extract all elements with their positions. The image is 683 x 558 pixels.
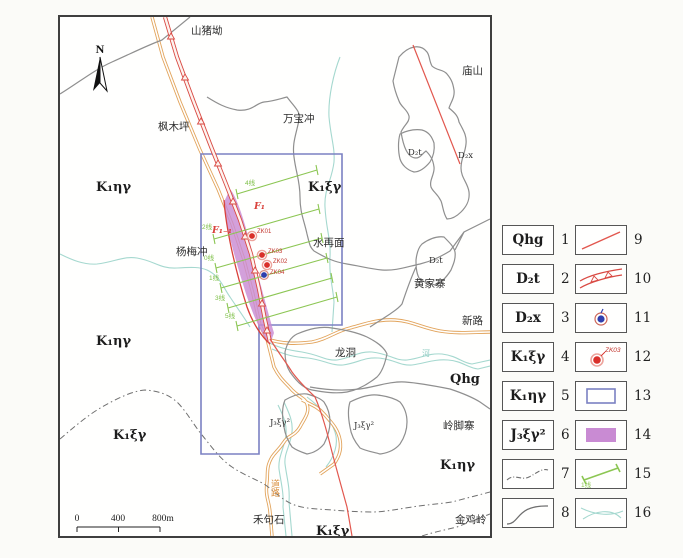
drillhole-label-zk01: ZK01: [257, 229, 272, 235]
legend-swatch-j3xy2: J₃ξγ²: [502, 420, 554, 450]
north-arrow-left: [93, 57, 100, 91]
place-fengmuping: 枫木坪: [158, 120, 190, 133]
fault-zone-icon: [577, 265, 625, 293]
survey-label-3: 3线: [215, 293, 226, 302]
legend-swatch-phase-boundary: [502, 459, 554, 489]
stream-j3: [307, 397, 336, 467]
scale-0: 0: [75, 514, 80, 524]
drillhole-zk02: ZK02: [262, 259, 288, 270]
legend-number-14: 14: [634, 427, 651, 443]
unit-d2t-center: D₂t: [429, 256, 443, 266]
place-huangjiazhai: 黄家寨: [414, 277, 446, 290]
legend-unit-label-k1xy: K₁ξγ: [511, 349, 546, 365]
north-arrow-right: [100, 57, 107, 91]
legend-number-10: 10: [634, 271, 651, 287]
fault-northeast: [413, 45, 460, 164]
legend-swatch-qhg: Qhg: [502, 225, 554, 255]
road-label: 道路: [270, 478, 280, 498]
unit-k1xy-sw: K₁ξγ: [113, 428, 147, 443]
legend-item-2: D₂t 2: [502, 264, 570, 294]
legend-item-13: 13: [575, 381, 651, 411]
unit-k1hy-nw: K₁ηγ: [96, 180, 131, 195]
boundary-qhg-west: [370, 267, 416, 327]
legend-swatch-study-area: [575, 381, 627, 411]
legend-unit-label-k1hy: K₁ηγ: [510, 388, 546, 404]
legend-1xian-label: 1线: [581, 480, 592, 488]
legend-number-8: 8: [561, 505, 570, 521]
exploration-line-icon: 1线: [577, 460, 625, 488]
geological-map-figure: 4线 2线 0线 1线 3线 5线 ZK01 ZK03: [0, 0, 683, 558]
unit-j3xy2-w: J₃ξγ²: [269, 418, 290, 428]
north-arrow: N: [93, 42, 107, 91]
place-wanbaochong: 万宝冲: [283, 112, 315, 125]
legend-number-5: 5: [561, 388, 570, 404]
study-area-icon: [577, 382, 625, 410]
legend-number-15: 15: [634, 466, 651, 482]
place-jinjiling: 金鸡岭: [455, 513, 487, 526]
unit-d2x-ne: D₂x: [458, 151, 473, 161]
survey-label-4: 4线: [245, 178, 256, 187]
legend-item-10: 10: [575, 264, 651, 294]
legend-swatch-fault-line: [575, 225, 627, 255]
river-main: [267, 342, 490, 364]
drillhole-label-zk02: ZK02: [273, 259, 288, 265]
drillhole-zk04-barren: ZK04: [260, 270, 285, 279]
map-frame: 4线 2线 0线 1线 3线 5线 ZK01 ZK03: [58, 15, 492, 538]
phase-boundary-dashdot-icon: [504, 460, 552, 488]
legend-number-1: 1: [561, 232, 570, 248]
legend-item-16: 16: [575, 498, 651, 528]
stream-icon: [577, 499, 625, 527]
legend-swatch-ore-body: [575, 420, 627, 450]
map-svg: 4线 2线 0线 1线 3线 5线 ZK01 ZK03: [60, 17, 490, 536]
streams: [60, 57, 490, 536]
legend-number-16: 16: [634, 505, 651, 521]
drillhole-ore-icon: ZK03: [577, 343, 625, 371]
boundary-huangjiazhai-tail: [455, 232, 464, 250]
legend-swatch-drillhole-barren: [575, 303, 627, 333]
drillhole-barren-icon: [577, 304, 625, 332]
legend-swatch-drillhole-ore: ZK03: [575, 342, 627, 372]
legend-swatch-stream: [575, 498, 627, 528]
legend-swatch-exploration-line: 1线: [575, 459, 627, 489]
legend-item-9: 9: [575, 225, 651, 255]
legend-item-1: Qhg 1: [502, 225, 570, 255]
survey-label-5: 5线: [225, 311, 236, 320]
legend-unit-label-j3xy2: J₃ξγ²: [510, 427, 545, 443]
legend-number-11: 11: [634, 310, 651, 326]
legend-number-7: 7: [561, 466, 570, 482]
place-yangmeichong: 杨梅冲: [176, 245, 208, 258]
legend-swatch-k1xy: K₁ξγ: [502, 342, 554, 372]
place-longdong: 龙洞: [335, 346, 356, 359]
legend-item-8: 8: [502, 498, 570, 528]
legend-number-9: 9: [634, 232, 643, 248]
legend-unit-label-d2t: D₂t: [516, 271, 540, 287]
legend-item-4: K₁ξγ 4: [502, 342, 570, 372]
legend-column-units: Qhg 1 D₂t 2 D₂x 3 K₁ξγ 4 K₁ηγ 5 J₃ξγ² 6: [502, 225, 570, 537]
legend-item-5: K₁ηγ 5: [502, 381, 570, 411]
legend-item-3: D₂x 3: [502, 303, 570, 333]
legend-item-6: J₃ξγ² 6: [502, 420, 570, 450]
legend-swatch-fault-zone: [575, 264, 627, 294]
fault-label-f1-1: F₁₋₁: [211, 225, 232, 236]
place-shanzhuao: 山猪坳: [191, 24, 223, 37]
place-miaoshan: 庙山: [462, 64, 483, 77]
survey-label-1: 1线: [209, 273, 220, 282]
scale-bar: 0 400 800m: [75, 514, 175, 532]
place-hejushi: 禾句石: [253, 513, 285, 526]
fault-line-icon: [577, 226, 625, 254]
unit-d2t-ne: D₂t: [408, 148, 422, 158]
place-shuizaimian: 水再面: [313, 237, 345, 249]
river-label: 河: [422, 348, 430, 358]
scale-400: 400: [111, 514, 126, 524]
legend-number-4: 4: [561, 349, 570, 365]
legend-zk03-label: ZK03: [604, 347, 621, 354]
unit-j3xy2-e: J₃ξγ²: [353, 421, 374, 431]
unit-k1xy-ne: K₁ξγ: [308, 180, 342, 195]
legend-item-11: 11: [575, 303, 651, 333]
legend-swatch-d2x: D₂x: [502, 303, 554, 333]
legend-item-14: 14: [575, 420, 651, 450]
legend-unit-label-qhg: Qhg: [512, 232, 543, 248]
legend-item-12: ZK03 12: [575, 342, 651, 372]
legend-swatch-geo-boundary: [502, 498, 554, 528]
drillhole-zk03: ZK03: [257, 249, 283, 260]
ore-body-icon: [577, 421, 625, 449]
legend-number-2: 2: [561, 271, 570, 287]
road-east: [267, 320, 490, 343]
legend-swatch-d2t: D₂t: [502, 264, 554, 294]
unit-k1hy-w: K₁ηγ: [96, 334, 131, 349]
drillhole-label-zk04: ZK04: [270, 270, 285, 276]
legend-number-3: 3: [561, 310, 570, 326]
legend-swatch-k1hy: K₁ηγ: [502, 381, 554, 411]
place-xinlu: 新路: [462, 314, 483, 327]
boundary-miaoshan-blob: [393, 47, 469, 219]
legend-number-13: 13: [634, 388, 651, 404]
drillhole-zk01: ZK01: [247, 229, 272, 241]
place-lingjiaozhai: 岭脚寨: [443, 419, 475, 432]
legend-unit-label-d2x: D₂x: [515, 310, 541, 326]
unit-k1hy-se: K₁ηγ: [440, 458, 475, 473]
scale-800m: 800m: [152, 514, 174, 524]
legend-number-12: 12: [634, 349, 651, 365]
geological-boundary-icon: [504, 499, 552, 527]
unit-qhg: Qhg: [450, 372, 480, 387]
unit-k1xy-s: K₁ξγ: [316, 524, 350, 536]
legend-column-symbols: 9 10 11: [575, 225, 651, 537]
fault-label-f1: F₁: [253, 201, 265, 212]
legend-number-6: 6: [561, 427, 570, 443]
geological-boundaries: [60, 17, 490, 454]
drillhole-label-zk03: ZK03: [268, 249, 283, 255]
legend-item-7: 7: [502, 459, 570, 489]
place-labels: 山猪坳 庙山 枫木坪 万宝冲 杨梅冲 水再面 黄家寨 新路 龙洞 岭脚寨 金鸡岭…: [158, 24, 487, 526]
north-label: N: [96, 42, 105, 56]
legend-item-15: 1线 15: [575, 459, 651, 489]
